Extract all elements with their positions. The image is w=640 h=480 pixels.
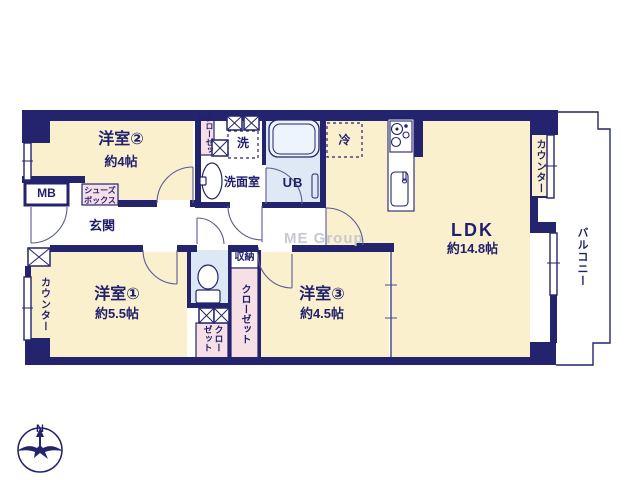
compass-north-label: N (33, 423, 47, 435)
storage-label: 収納 (231, 252, 258, 263)
closet-mid-label: クローゼット (231, 270, 258, 358)
washroom-label: 洗面室 (214, 176, 270, 189)
mb-label: MB (25, 187, 68, 200)
entrance-door (31, 207, 67, 243)
counter-left-label: カウンター (31, 268, 57, 341)
genkan-label: 玄関 (80, 219, 124, 233)
ldk-size: 約14.8帖 (430, 242, 515, 256)
ldk-name: LDK (430, 221, 515, 241)
floor-plan: 洋室② 約4帖 洋室① 約5.5帖 洋室③ 約4.5帖 LDK 約14.8帖 玄… (0, 0, 640, 480)
toilet-door (197, 218, 224, 244)
shoes-box-label: シューズボックス (82, 186, 118, 205)
bird-silhouette (17, 445, 63, 459)
room1-size: 約5.5帖 (55, 307, 179, 321)
room3-size: 約4.5帖 (260, 307, 384, 321)
fridge-label: 冷 (327, 134, 362, 147)
washroom-door (228, 206, 262, 240)
balcony-label: バルコニー (570, 213, 594, 301)
room2-size: 約4帖 (60, 155, 182, 169)
closet-top-label: クローゼット (196, 114, 214, 154)
kitchen-counter (388, 119, 414, 211)
watermark: ME Group (284, 230, 364, 247)
bath-label: UB (270, 176, 316, 190)
room2-name: 洋室② (60, 131, 182, 149)
laundry-label: 洗 (228, 137, 258, 150)
room1-name: 洋室① (55, 286, 179, 304)
bathtub (269, 120, 319, 157)
counter-right-label: カウンター (531, 136, 548, 196)
room3-name: 洋室③ (260, 286, 384, 304)
toilet (196, 265, 220, 303)
closet-bottom-label: クローゼット (197, 325, 228, 357)
